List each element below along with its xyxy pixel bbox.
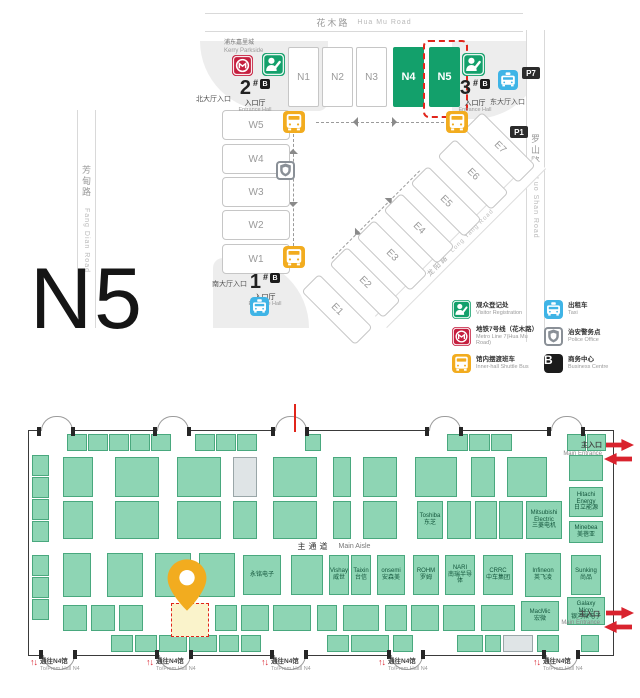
booth[interactable] (177, 457, 221, 497)
registration-icon (262, 53, 285, 76)
booth[interactable] (135, 635, 157, 652)
booth[interactable] (291, 555, 323, 595)
booth[interactable]: 永铭电子 (243, 555, 281, 595)
booth[interactable] (457, 635, 483, 652)
door-jamb (581, 427, 585, 436)
up-down-arrows-icon: ↑↓ (533, 658, 540, 667)
booth[interactable]: Mitsubishi Electric 三菱电机 (526, 501, 562, 539)
door-jamb (459, 427, 463, 436)
booth[interactable] (411, 605, 439, 631)
shuttle-icon (446, 111, 468, 133)
legend-item-shuttle: 馆内摆渡班车Inner-hall Shuttle Bus (452, 350, 544, 377)
business-centre-icon: B (260, 79, 270, 89)
hall-w1[interactable]: W1 (222, 244, 290, 274)
hall-n4[interactable]: N4 (393, 47, 424, 107)
taxi-icon (250, 297, 269, 316)
shuttle-arrow-right-icon (392, 117, 402, 127)
gate-label-to-hall-n4: ↑↓通往N4馆To/From Hall N4 (146, 658, 196, 672)
booth[interactable] (189, 635, 217, 652)
current-hall-label: N5 (30, 256, 144, 342)
booth[interactable] (32, 555, 49, 576)
legend-item-registration: 观众登记处Visitor Registration (452, 296, 544, 323)
booth[interactable] (32, 477, 49, 498)
taxi-icon (498, 70, 518, 90)
gate-label-to-hall-n4: ↑↓通往N4馆To/From Hall N4 (378, 658, 428, 672)
booth[interactable] (237, 434, 257, 451)
road-huamu-label-en: Hua Mu Road (357, 19, 411, 26)
booth[interactable]: Toshiba 东芝 (417, 501, 443, 539)
hall-w5[interactable]: W5 (222, 110, 290, 140)
shuttle-arrow-left-icon (348, 117, 358, 127)
booth[interactable] (63, 501, 93, 539)
booth[interactable] (447, 434, 468, 451)
booth[interactable] (215, 605, 237, 631)
parking-badge-p7: P7 (522, 67, 540, 79)
booth[interactable] (363, 457, 397, 497)
entrance-3-side-label: 东大厅入口 (490, 97, 525, 107)
metro-icon (232, 55, 253, 76)
legend-item-metro: 地铁7号线（花木路）Metro Line 7(Hua Mu Road) (452, 323, 544, 350)
booth[interactable] (469, 434, 490, 451)
booth[interactable] (32, 455, 49, 476)
booth[interactable] (317, 605, 337, 631)
location-pin-icon (165, 557, 209, 613)
door-jamb (37, 427, 41, 436)
booth[interactable] (351, 635, 389, 652)
booth[interactable] (273, 605, 311, 631)
business-icon: B (544, 354, 563, 373)
booth[interactable] (447, 501, 471, 539)
booth[interactable] (67, 434, 87, 451)
legend-item-taxi: 出租车Taxi (544, 296, 636, 323)
booth[interactable] (333, 457, 351, 497)
booth[interactable] (393, 635, 413, 652)
door-jamb (153, 427, 157, 436)
booth[interactable] (63, 553, 91, 597)
booth[interactable]: CRRC 中车集团 (483, 555, 513, 595)
booth[interactable] (216, 434, 236, 451)
parking-badge-p1: P1 (510, 126, 528, 138)
booth[interactable]: Vishay 威世 (329, 555, 349, 595)
door-top[interactable] (429, 416, 461, 431)
booth[interactable] (91, 605, 115, 631)
booth[interactable]: Sunking 尚品 (571, 555, 601, 595)
booth[interactable] (111, 635, 133, 652)
up-down-arrows-icon: ↑↓ (261, 658, 268, 667)
legend-item-business: B商务中心Business Centre (544, 350, 636, 377)
shuttle-icon (283, 246, 305, 268)
entrance-2-block: 2#B 入口厅 Entrance Hall (232, 78, 278, 114)
booth[interactable]: Taixin 台信 (351, 555, 371, 595)
entrance-3-block: 3#B 入口厅 Entrance Hall (452, 78, 498, 114)
road-luoshan-label-en: Luo Shan Road (532, 177, 539, 239)
police-icon (276, 161, 295, 180)
door-jamb (425, 427, 429, 436)
door-jamb (71, 427, 75, 436)
kerry-parkside-label: 浦东嘉里城 Kerry Parkside (224, 40, 263, 55)
gate-label-to-hall-n4: ↑↓通往N4馆To/From Hall N4 (261, 658, 311, 672)
hall-n1[interactable]: N1 (288, 47, 319, 107)
entrance-1-side-label: 南大厅入口 (212, 279, 247, 289)
booth[interactable] (159, 635, 187, 652)
booth[interactable]: Hitachi Energy 日立能源 (569, 487, 603, 517)
business-centre-icon: B (270, 273, 280, 283)
gate-label-to-hall-n4: ↑↓通往N4馆To/From Hall N4 (533, 658, 583, 672)
booth[interactable] (569, 455, 603, 481)
door-top[interactable] (275, 416, 307, 431)
booth[interactable] (581, 635, 599, 652)
hall-w2[interactable]: W2 (222, 210, 290, 240)
hall-n3[interactable]: N3 (356, 47, 387, 107)
booth[interactable] (241, 635, 261, 652)
road-fangdian-label-zh: 芳甸路 (80, 165, 93, 198)
up-down-arrows-icon: ↑↓ (146, 658, 153, 667)
metro-icon (452, 327, 471, 346)
registration-icon (452, 300, 471, 319)
booth[interactable] (32, 599, 49, 620)
booth[interactable] (499, 501, 523, 539)
booth[interactable] (151, 434, 171, 451)
main-entrance-label-south: 主入口 Main Entrance (538, 611, 600, 627)
booth[interactable] (219, 635, 239, 652)
booth[interactable] (63, 457, 93, 497)
door-top[interactable] (551, 416, 583, 431)
door-jamb (271, 427, 275, 436)
booth[interactable] (88, 434, 108, 451)
booth[interactable] (305, 434, 321, 451)
booth[interactable] (491, 434, 512, 451)
main-entrance-label-north: 主入口 Main Entrance (540, 442, 602, 458)
booth[interactable] (273, 501, 317, 539)
booth[interactable]: NARI 南瑞半导体 (445, 555, 475, 595)
booth[interactable] (333, 501, 351, 539)
booth[interactable] (503, 635, 533, 652)
booth[interactable] (471, 457, 495, 497)
taxi-icon (544, 300, 563, 319)
door-top[interactable] (41, 416, 73, 431)
registration-icon (462, 53, 485, 76)
booth[interactable] (485, 635, 501, 652)
door-top[interactable] (157, 416, 189, 431)
booth[interactable] (537, 635, 559, 652)
booth[interactable] (115, 501, 159, 539)
booth[interactable] (443, 605, 475, 631)
section-marker (294, 404, 296, 432)
main-aisle-label: 主通道 Main Aisle (267, 540, 401, 552)
booth[interactable] (273, 457, 317, 497)
hall-n2[interactable]: N2 (322, 47, 353, 107)
door-jamb (305, 427, 309, 436)
booth[interactable] (327, 635, 349, 652)
shuttle-route-top (316, 122, 444, 123)
gate-label-to-hall-n4: ↑↓通往N4馆To/From Hall N4 (30, 658, 80, 672)
booth[interactable] (32, 577, 49, 598)
booth[interactable] (63, 605, 87, 631)
door-jamb (547, 427, 551, 436)
booth[interactable] (195, 434, 215, 451)
door-jamb (187, 427, 191, 436)
booth[interactable] (32, 499, 49, 520)
booth[interactable] (415, 457, 457, 497)
shuttle-icon (283, 111, 305, 133)
venue-map-page: 花木路 Hua Mu Road 罗山路 Luo Shan Road 芳甸路 Fa… (0, 0, 640, 698)
booth[interactable] (233, 501, 257, 539)
legend-item-police: 治安警务点Police Office (544, 323, 636, 350)
booth[interactable] (115, 457, 159, 497)
booth[interactable] (177, 501, 221, 539)
booth[interactable] (119, 605, 143, 631)
booth[interactable] (475, 501, 497, 539)
booth[interactable] (343, 605, 379, 631)
up-down-arrows-icon: ↑↓ (378, 658, 385, 667)
booth[interactable] (233, 457, 257, 497)
hall-floorplan: 主通道 Main Aisle Hitachi Energy 日立能源Minebe… (28, 430, 614, 656)
police-icon (544, 327, 563, 346)
booth[interactable]: Minebea 美蓓亚 (569, 521, 603, 543)
shuttle-icon (452, 354, 471, 373)
booth[interactable] (363, 501, 397, 539)
booth[interactable] (107, 553, 143, 597)
road-huamu-label-zh: 花木路 (316, 16, 349, 29)
booth[interactable] (130, 434, 150, 451)
entrance-2-side-label: 北大厅入口 (196, 94, 231, 104)
map-legend: 观众登记处Visitor Registration出租车Taxi地铁7号线（花木… (452, 296, 636, 377)
booth[interactable] (481, 605, 515, 631)
booth[interactable] (507, 457, 547, 497)
business-centre-icon: B (480, 79, 490, 89)
booth[interactable] (241, 605, 269, 631)
road-huamu: 花木路 Hua Mu Road (205, 13, 523, 32)
hall-w3[interactable]: W3 (222, 177, 290, 207)
booth[interactable]: onsemi 安森美 (377, 555, 405, 595)
booth[interactable] (32, 521, 49, 542)
up-down-arrows-icon: ↑↓ (30, 658, 37, 667)
booth[interactable] (385, 605, 407, 631)
booth[interactable]: ROHM 罗姆 (413, 555, 439, 595)
booth[interactable] (109, 434, 129, 451)
booth[interactable]: Infineon 英飞凌 (525, 553, 561, 597)
